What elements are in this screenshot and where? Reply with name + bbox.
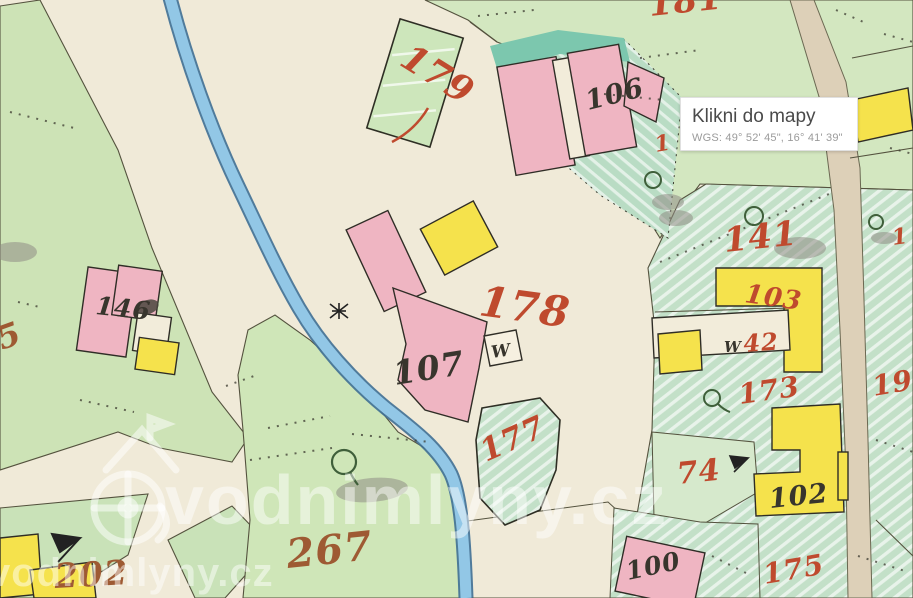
mill-symbol [330, 303, 348, 319]
tooltip-coordinates: WGS: 49° 52' 45", 16° 41' 39" [692, 132, 846, 144]
tooltip-title: Klikni do mapy [692, 105, 846, 129]
parcel-label-42: 42 [742, 327, 779, 358]
map-viewport[interactable]: 181179106114651411178103107WW42173191777… [0, 0, 913, 598]
watermark-text: vodnimlyny.cz [165, 461, 668, 539]
parcel-label-74: 74 [675, 453, 722, 492]
parcel-label-W: W [490, 340, 514, 363]
map-tooltip: Klikni do mapy WGS: 49° 52' 45", 16° 41'… [680, 97, 858, 151]
parcel-label-W: W [724, 338, 743, 356]
parcel-label-102: 102 [767, 478, 829, 515]
parcel-label-141: 141 [722, 213, 800, 261]
parcel-label-19: 19 [869, 363, 913, 403]
cadastral-map[interactable]: 181179106114651411178103107WW42173191777… [0, 0, 913, 598]
watermark-text-small: vodnimlyny.cz [0, 551, 274, 595]
parcel-label-146: 146 [94, 291, 152, 326]
